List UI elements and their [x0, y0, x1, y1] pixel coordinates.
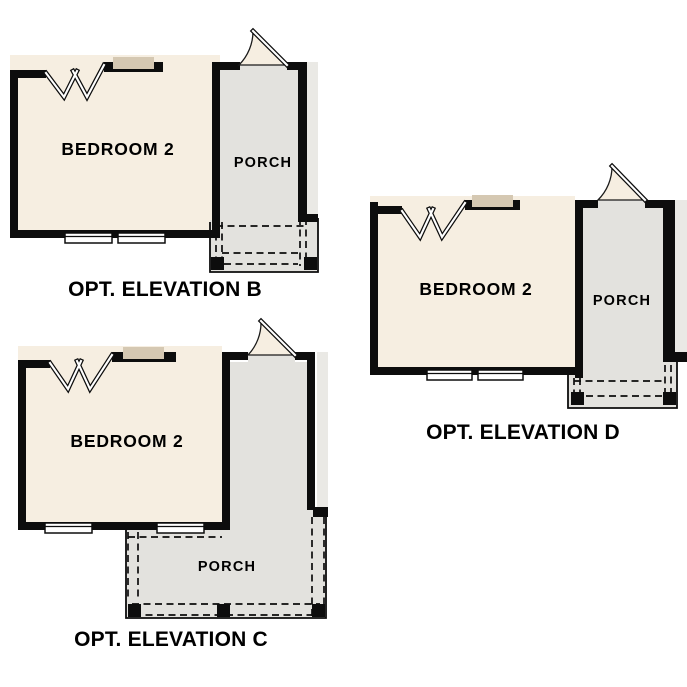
porch-post [663, 392, 676, 405]
porch-floor [583, 208, 663, 375]
masonry-window-symbol [472, 195, 513, 207]
masonry-window-symbol [123, 347, 164, 359]
floorplan-sheet: BEDROOM 2 PORCH OPT. ELEVATION B [0, 0, 687, 687]
room-label: BEDROOM 2 [419, 279, 532, 299]
window-symbol [118, 233, 165, 243]
siding-strip [307, 62, 318, 215]
plan-elevation-c: BEDROOM 2 PORCH [0, 316, 350, 628]
porch-post [211, 257, 224, 270]
masonry-window-symbol [113, 57, 154, 69]
porch-post [304, 257, 317, 270]
window-symbol [157, 523, 204, 533]
elevation-caption: OPT. ELEVATION B [15, 278, 315, 302]
window-symbol [427, 370, 472, 380]
porch-post [217, 604, 230, 617]
porch-floor [220, 62, 298, 222]
porch-post [312, 604, 325, 617]
door-swing-symbol [239, 31, 287, 65]
plan-elevation-d: BEDROOM 2 PORCH [358, 148, 687, 423]
elevation-caption: OPT. ELEVATION D [373, 421, 673, 445]
porch-label: PORCH [198, 559, 256, 575]
elevation-caption: OPT. ELEVATION C [21, 628, 321, 652]
door-opening [598, 200, 645, 209]
porch-post [128, 604, 141, 617]
siding-strip [675, 200, 687, 352]
siding-strip [317, 352, 328, 507]
porch-label: PORCH [234, 155, 292, 171]
door-swing-symbol [598, 166, 645, 200]
window-symbol [478, 370, 523, 380]
door-swing-symbol [248, 321, 295, 355]
window-symbol [45, 523, 92, 533]
porch-slab [568, 375, 677, 408]
room-label: BEDROOM 2 [61, 139, 174, 159]
porch-floor [230, 362, 315, 530]
porch-label: PORCH [593, 293, 651, 309]
window-symbol [65, 233, 112, 243]
plan-elevation-b: BEDROOM 2 PORCH [0, 0, 340, 312]
porch-post [571, 392, 584, 405]
room-label: BEDROOM 2 [70, 431, 183, 451]
